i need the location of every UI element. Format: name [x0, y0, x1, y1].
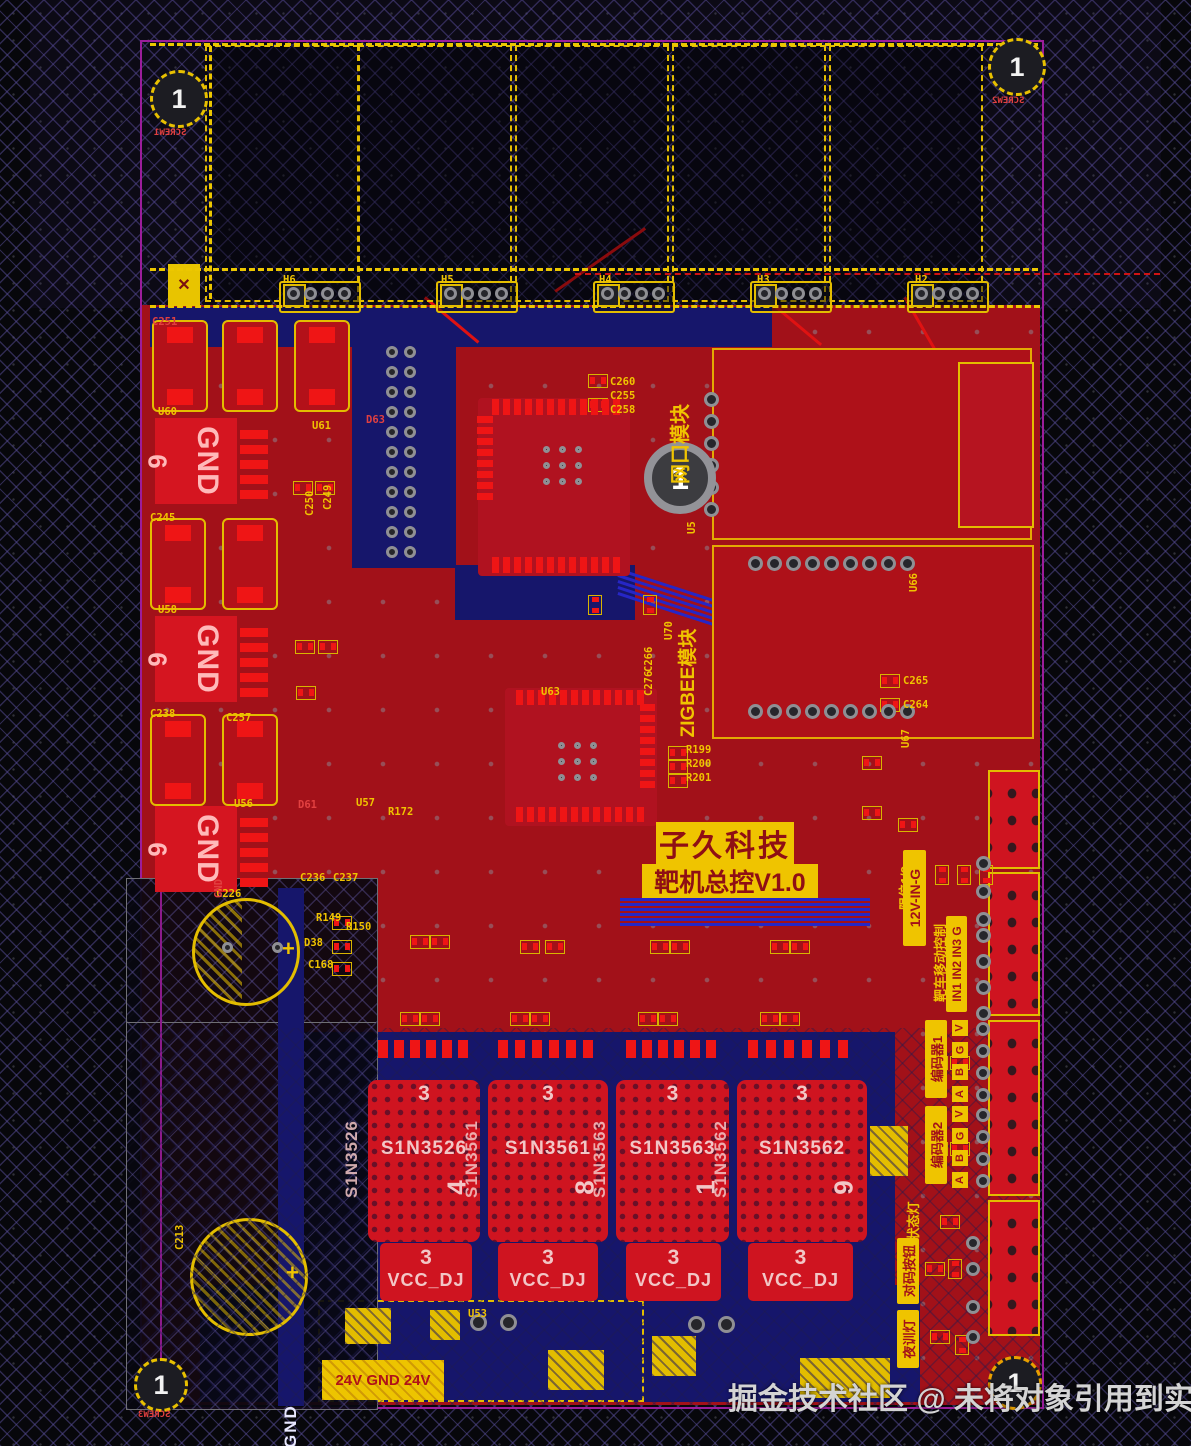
smd-component[interactable] [930, 1330, 950, 1344]
through-hole-pad [386, 506, 398, 518]
silk-designator: C237 [333, 872, 358, 884]
net-text: VCC_DJ [748, 1270, 853, 1291]
silk-designator: U70 [663, 621, 675, 640]
smd-pad [492, 399, 499, 415]
smd-pad [394, 1040, 404, 1058]
smd-pad [560, 690, 567, 705]
smd-component[interactable] [295, 640, 315, 654]
vcc-dj-tab-1: 3VCC_DJ [380, 1243, 472, 1301]
screw-hole-2: 1 [988, 38, 1046, 96]
smd-component[interactable] [940, 1215, 960, 1229]
through-hole-pad [386, 526, 398, 538]
antenna-module-3[interactable] [515, 45, 669, 302]
silk-designator: C249 [322, 485, 334, 510]
through-hole-pad [843, 556, 858, 571]
through-hole-pad [688, 1316, 705, 1333]
capacitor-footprint[interactable] [294, 320, 350, 412]
through-hole-pad [618, 287, 631, 300]
silk-designator: H5 [441, 274, 454, 286]
silk-designator: GND [213, 879, 225, 898]
smd-pad [492, 557, 499, 573]
smd-pad [536, 399, 543, 415]
through-hole-pad [976, 1022, 990, 1036]
smd-pad [240, 643, 268, 652]
smd-pad [560, 807, 567, 822]
through-hole-pad [966, 1262, 980, 1276]
ethernet-module-label: 网口模块 [664, 368, 693, 520]
regulator-gnd-block-1[interactable]: 6GND [155, 418, 237, 504]
antenna-module-5[interactable] [829, 45, 983, 302]
smd-pad [442, 1040, 452, 1058]
keepout-footprint [652, 1336, 696, 1376]
smd-pad [802, 1040, 812, 1058]
dashed-guide-line [150, 268, 1038, 271]
smd-component[interactable] [862, 806, 882, 820]
screw-number: 1 [153, 1370, 168, 1401]
silk-designator: U57 [356, 797, 375, 809]
smd-pad [569, 557, 576, 573]
smd-pad [240, 628, 268, 637]
smd-pad [838, 1040, 848, 1058]
smd-component[interactable] [760, 1012, 780, 1026]
smd-pad [640, 704, 655, 711]
input-pins-label: IN1 IN2 IN3 G [946, 916, 967, 1012]
smd-pad [514, 399, 521, 415]
through-hole-pad [862, 704, 877, 719]
company-silkscreen: 子久科技 [656, 822, 794, 864]
smd-component[interactable] [935, 865, 949, 885]
smd-component[interactable] [925, 1262, 945, 1276]
vcc-dj-tab-4: 3VCC_DJ [748, 1243, 853, 1301]
through-hole-pad [976, 1174, 990, 1188]
through-hole-pad [386, 386, 398, 398]
encoder2-label: 编码器2 [925, 1106, 947, 1184]
smd-pad [591, 399, 598, 415]
smd-pad [615, 807, 622, 822]
pin-letter-label: G [952, 1042, 968, 1058]
pcb-canvas[interactable]: GND + + 1 子久科技 靶机总控V1.0 24V GND 24V ✕ 1 … [0, 0, 1191, 1446]
through-hole-pad [976, 1044, 990, 1058]
through-hole-pad [704, 502, 719, 517]
smd-pad [640, 781, 655, 788]
smd-pad [674, 1040, 684, 1058]
smd-pad [240, 445, 268, 454]
through-hole-pad [404, 546, 416, 558]
capacitor-footprint[interactable] [222, 518, 278, 610]
watermark: 掘金技术社区 @ 未将对象引用到实例 [728, 1374, 1191, 1418]
smd-pad [640, 759, 655, 766]
smd-pad [477, 449, 493, 456]
smd-pad [571, 807, 578, 822]
through-hole-pad [590, 758, 597, 765]
through-hole-pad [386, 426, 398, 438]
pin-number-text: 3 [748, 1246, 853, 1270]
smd-pad [615, 690, 622, 705]
silk-designator: C236 [300, 872, 325, 884]
through-hole-pad [590, 742, 597, 749]
through-hole-pad [404, 386, 416, 398]
through-hole-pad [805, 704, 820, 719]
screw-label: SCREW1 [154, 128, 187, 138]
silk-designator: C265 [903, 675, 928, 687]
through-hole-pad [574, 774, 581, 781]
smd-pad [532, 1040, 542, 1058]
smd-component[interactable] [545, 940, 565, 954]
silk-designator: C168 [308, 959, 333, 971]
silk-designator: C213 [174, 1225, 186, 1250]
through-hole-pad [495, 287, 508, 300]
smd-pad [240, 878, 268, 887]
smd-pad [690, 1040, 700, 1058]
mcu-chip-u63[interactable] [505, 688, 657, 826]
silk-designator: U56 [234, 798, 253, 810]
smd-pad [640, 726, 655, 733]
smd-pad [593, 807, 600, 822]
smd-component[interactable] [770, 940, 790, 954]
screw-hole-1: 1 [150, 70, 208, 128]
through-hole-pad [805, 556, 820, 571]
through-hole-pad [404, 446, 416, 458]
cap-plus-mark: + [282, 936, 295, 962]
smd-pad [240, 658, 268, 667]
smd-pad [477, 460, 493, 467]
smd-component[interactable] [790, 940, 810, 954]
gnd-net-text: GND [281, 1404, 301, 1446]
smd-component[interactable] [650, 940, 670, 954]
net-text: S1N3563 [590, 1120, 610, 1198]
trace-line [620, 918, 870, 921]
through-hole-pad [574, 758, 581, 765]
smd-pad [538, 807, 545, 822]
silk-designator: H2 [915, 274, 928, 286]
smd-pad [240, 673, 268, 682]
smd-component[interactable] [400, 1012, 420, 1026]
silk-designator: C238 [150, 708, 175, 720]
net-text: 3 [737, 1082, 867, 1106]
through-hole-pad [386, 486, 398, 498]
smd-component[interactable] [638, 1012, 658, 1026]
through-hole-pad [824, 704, 839, 719]
smd-component[interactable] [643, 595, 657, 615]
pin-letter-label: B [952, 1150, 968, 1166]
smd-component[interactable] [588, 374, 608, 388]
net-text: VCC_DJ [498, 1270, 598, 1291]
smd-pad [626, 690, 633, 705]
screw-number: 1 [1009, 52, 1024, 83]
smd-component[interactable] [410, 935, 430, 949]
smd-pad [240, 848, 268, 857]
pairing-button-label: 对码按钮 [897, 1238, 919, 1304]
through-hole-pad [386, 346, 398, 358]
smd-component[interactable] [318, 640, 338, 654]
silk-designator: R200 [686, 758, 711, 770]
pin-letter-label: B [952, 1064, 968, 1080]
pin-letter-label: V [952, 1106, 968, 1122]
through-hole-pad [559, 478, 566, 485]
power-in-label: 12V-IN-G [903, 850, 926, 946]
pin-number-text: 6 [142, 842, 173, 856]
keepout-footprint [430, 1310, 460, 1340]
smd-component[interactable] [530, 1012, 550, 1026]
screw-label: SCREW2 [992, 96, 1025, 106]
smd-pad [748, 1040, 758, 1058]
smd-pad [558, 399, 565, 415]
silk-designator: C251 [152, 316, 177, 328]
silk-designator: C264 [903, 699, 928, 711]
smd-pad [503, 399, 510, 415]
smd-pad [426, 1040, 436, 1058]
smd-pad [240, 833, 268, 842]
through-hole-pad [287, 287, 300, 300]
silk-designator: U61 [312, 420, 331, 432]
vcc-dj-tab-2: 3VCC_DJ [498, 1243, 598, 1301]
smd-pad [642, 1040, 652, 1058]
pin-number-text: 3 [498, 1246, 598, 1270]
smd-pad [240, 863, 268, 872]
keepout-footprint [345, 1308, 391, 1344]
silk-designator: U67 [900, 729, 912, 748]
net-text: 9 [828, 1180, 859, 1194]
smd-component[interactable] [670, 940, 690, 954]
net-text: VCC_DJ [626, 1270, 721, 1291]
smd-pad [547, 557, 554, 573]
through-hole-pad [966, 287, 979, 300]
through-hole-pad [786, 704, 801, 719]
through-hole-pad [575, 478, 582, 485]
silk-designator: U53 [468, 1308, 487, 1320]
smd-pad [582, 690, 589, 705]
capacitor-footprint[interactable] [222, 714, 278, 806]
net-text: S1N3561 [462, 1120, 482, 1198]
smd-component[interactable] [510, 1012, 530, 1026]
antenna-module-2[interactable] [358, 45, 512, 302]
net-text: 3 [488, 1082, 608, 1106]
through-hole-pad [404, 466, 416, 478]
smd-pad [580, 557, 587, 573]
smd-pad [706, 1040, 716, 1058]
through-hole-pad [386, 446, 398, 458]
cutout-outline-line [160, 878, 162, 1408]
pin-number-text: 6 [142, 652, 173, 666]
encoder1-label: 编码器1 [925, 1020, 947, 1098]
trace-line [620, 923, 870, 926]
net-text: S1N3562 [711, 1120, 731, 1198]
through-hole-pad [976, 1066, 990, 1080]
smd-pad [583, 1040, 593, 1058]
smd-pad [549, 807, 556, 822]
smd-component[interactable] [430, 935, 450, 949]
silk-designator: R150 [346, 921, 371, 933]
dashed-guide-line [209, 46, 212, 299]
smd-pad [640, 748, 655, 755]
smd-pad [525, 399, 532, 415]
through-hole-pad [748, 556, 763, 571]
capacitor-footprint[interactable] [150, 714, 206, 806]
smd-pad [591, 557, 598, 573]
through-hole-pad [976, 1088, 990, 1102]
silk-designator: C258 [610, 404, 635, 416]
trace-line [620, 908, 870, 911]
capacitor-footprint[interactable] [150, 518, 206, 610]
through-hole-pad [704, 436, 719, 451]
silk-designator: R201 [686, 772, 711, 784]
smd-component[interactable] [880, 674, 900, 688]
pin-letter-text: G [954, 1132, 966, 1141]
through-hole-pad [976, 884, 991, 899]
smd-component[interactable] [332, 962, 352, 976]
smd-pad [580, 399, 587, 415]
smd-pad [240, 688, 268, 697]
smd-pad [640, 737, 655, 744]
capacitor-footprint[interactable] [222, 320, 278, 412]
through-hole-pad [843, 704, 858, 719]
through-hole-pad [767, 556, 782, 571]
smd-component[interactable] [332, 940, 352, 954]
smd-pad [458, 1040, 468, 1058]
through-hole-pad [915, 287, 928, 300]
through-hole-pad [404, 426, 416, 438]
edge-connector[interactable] [988, 1020, 1040, 1196]
pin-letter-label: A [952, 1086, 968, 1102]
smd-pad [626, 807, 633, 822]
silk-designator: D38 [304, 937, 323, 949]
power-input-label: 24V GND 24V [322, 1360, 444, 1400]
through-hole-pad [976, 1130, 990, 1144]
pin-letter-text: V [954, 1110, 966, 1117]
dashed-guide-line [150, 43, 1038, 46]
night-training-light-label: 夜训灯 [897, 1310, 919, 1368]
pin-letter-label: A [952, 1172, 968, 1188]
smd-pad [527, 690, 534, 705]
smd-pad [784, 1040, 794, 1058]
silk-designator: H6 [283, 274, 296, 286]
net-text: VCC_DJ [380, 1270, 472, 1291]
net-text: S1N3562 [737, 1138, 867, 1160]
smd-component[interactable] [658, 1012, 678, 1026]
smd-pad [613, 557, 620, 573]
smd-pad [820, 1040, 830, 1058]
through-hole-pad [444, 287, 457, 300]
smd-pad [477, 438, 493, 445]
edge-connector[interactable] [988, 1200, 1040, 1336]
silk-designator: U58 [158, 604, 177, 616]
through-hole-pad [900, 556, 915, 571]
through-hole-pad [966, 1236, 980, 1250]
antenna-module-4[interactable] [672, 45, 826, 302]
mcu-chip-u61[interactable] [478, 398, 630, 576]
smd-pad [477, 416, 493, 423]
through-hole-pad [386, 466, 398, 478]
power-driver-block-4[interactable]: 3S1N3562S1N35629 [737, 1080, 867, 1242]
smd-component[interactable] [520, 940, 540, 954]
smd-pad [640, 770, 655, 777]
edge-connector[interactable] [988, 872, 1040, 1016]
smd-pad [626, 1040, 636, 1058]
regulator-gnd-block-2[interactable]: 6GND [155, 616, 237, 702]
pin-letter-label: V [952, 1020, 968, 1036]
edge-connector[interactable] [988, 770, 1040, 869]
gnd-net-text: GND [190, 814, 224, 884]
smd-component[interactable] [862, 756, 882, 770]
through-hole-pad [966, 1330, 980, 1344]
through-hole-pad [652, 287, 665, 300]
smd-component[interactable] [898, 818, 918, 832]
smd-pad [514, 557, 521, 573]
net-text: 3 [368, 1082, 480, 1106]
silk-designator: H4 [599, 274, 612, 286]
through-hole-pad [558, 774, 565, 781]
through-hole-pad [543, 446, 550, 453]
cutout-divider [126, 1022, 376, 1023]
through-hole-pad [718, 1316, 735, 1333]
smd-component[interactable] [957, 865, 971, 885]
smd-component[interactable] [948, 1259, 962, 1279]
silk-designator: U60 [158, 406, 177, 418]
smd-component[interactable] [780, 1012, 800, 1026]
through-hole-pad [932, 287, 945, 300]
smd-pad [527, 807, 534, 822]
through-hole-pad [949, 287, 962, 300]
smd-pad [593, 690, 600, 705]
pin-letter-text: A [954, 1176, 966, 1184]
smd-pad [536, 557, 543, 573]
keepout-footprint [548, 1350, 604, 1390]
smd-pad [566, 1040, 576, 1058]
through-hole-pad [404, 486, 416, 498]
through-hole-pad [881, 704, 896, 719]
through-hole-pad [976, 954, 991, 969]
through-hole-pad [386, 406, 398, 418]
smd-component[interactable] [588, 595, 602, 615]
smd-component[interactable] [420, 1012, 440, 1026]
through-hole-pad [704, 414, 719, 429]
pin-number-text: 6 [142, 454, 173, 468]
smd-pad [516, 807, 523, 822]
antenna-module-1[interactable] [205, 45, 359, 302]
through-hole-pad [558, 742, 565, 749]
trace-line [620, 913, 870, 916]
silk-designator: R149 [316, 912, 341, 924]
through-hole-pad [635, 287, 648, 300]
rj45-connector[interactable] [958, 362, 1034, 528]
smd-pad [240, 460, 268, 469]
through-hole-pad [404, 406, 416, 418]
through-hole-pad [575, 446, 582, 453]
silk-designator: C250 [304, 491, 316, 516]
pin-letter-text: A [954, 1090, 966, 1098]
through-hole-pad [575, 462, 582, 469]
silk-designator: C260 [610, 376, 635, 388]
capacitor-footprint[interactable] [152, 320, 208, 412]
smd-pad [503, 557, 510, 573]
smd-pad [571, 690, 578, 705]
silk-designator: C276 [643, 671, 655, 696]
smd-component[interactable] [296, 686, 316, 700]
through-hole-pad [304, 287, 317, 300]
through-hole-pad [272, 942, 283, 953]
through-hole-pad [824, 556, 839, 571]
through-hole-pad [574, 742, 581, 749]
smd-pad [240, 818, 268, 827]
smd-pad [602, 399, 609, 415]
through-hole-pad [862, 556, 877, 571]
pin-letter-label: G [952, 1128, 968, 1144]
vcc-dj-tab-3: 3VCC_DJ [626, 1243, 721, 1301]
smd-pad [525, 557, 532, 573]
through-hole-pad [786, 556, 801, 571]
through-hole-pad [976, 856, 991, 871]
through-hole-pad [704, 392, 719, 407]
